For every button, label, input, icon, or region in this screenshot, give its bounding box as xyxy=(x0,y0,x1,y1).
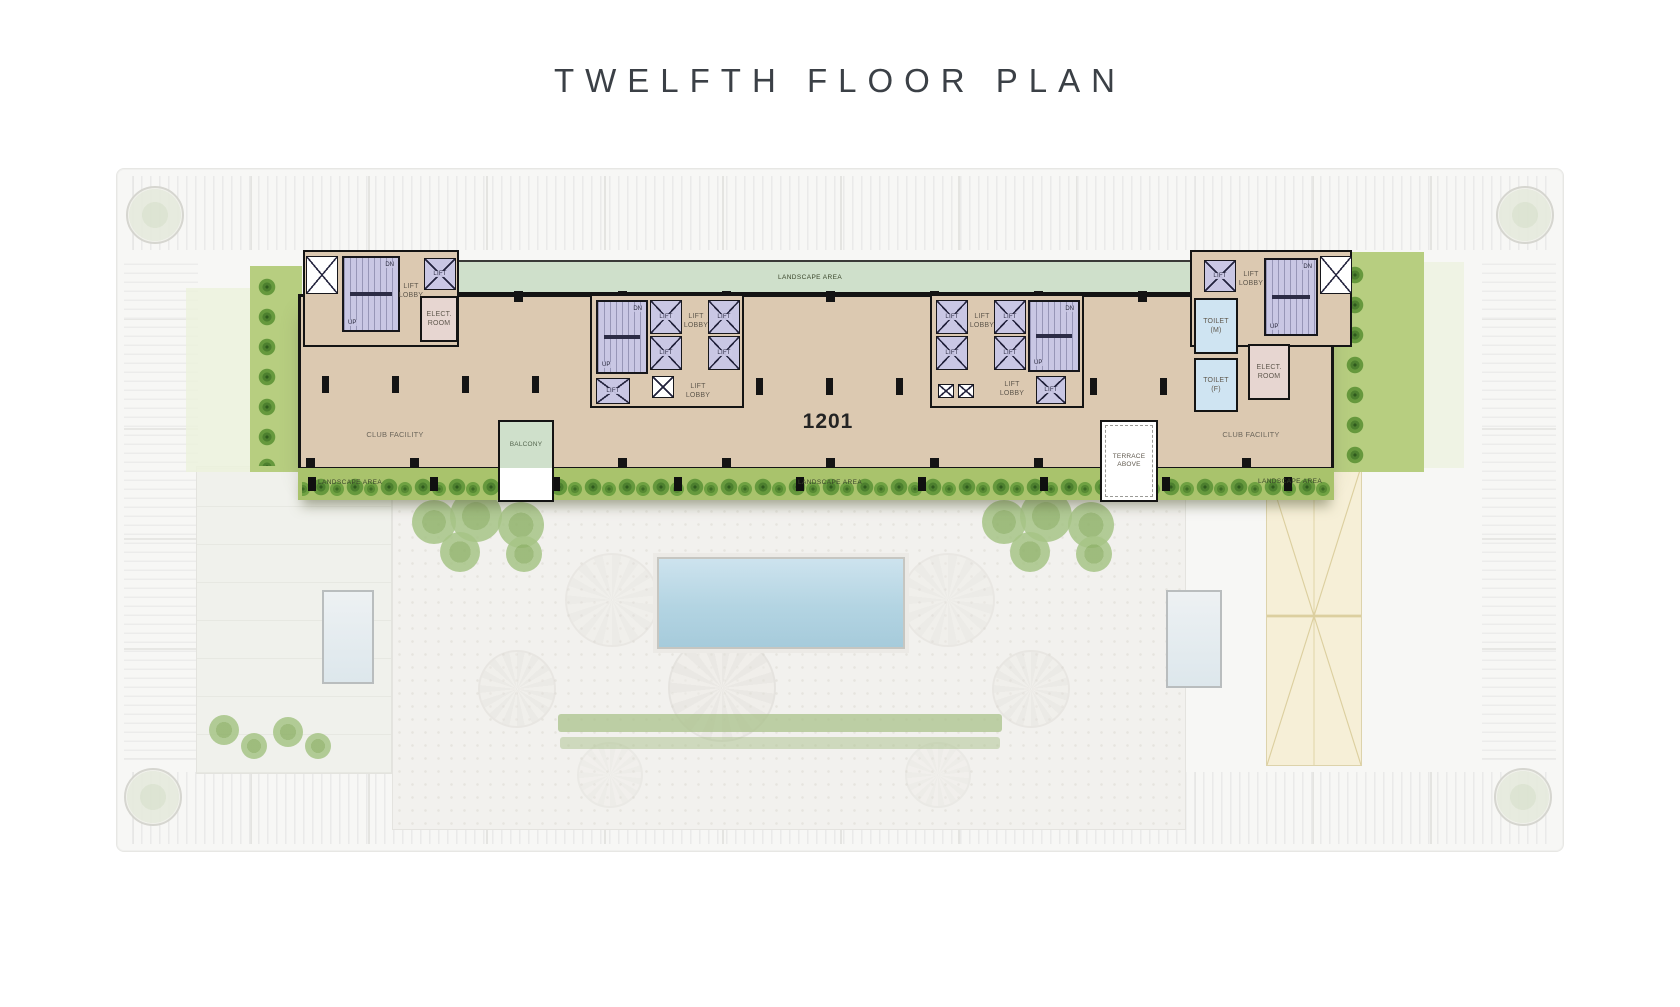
corner-tree-icon xyxy=(126,186,184,244)
column-row xyxy=(756,378,916,395)
stairs: UP DN xyxy=(1028,300,1080,372)
dn-label: DN xyxy=(1064,306,1075,312)
dn-label: DN xyxy=(632,306,643,312)
lift-label: LIFT xyxy=(658,314,673,320)
corner-tree-icon xyxy=(124,768,182,826)
landscape-area-label: LANDSCAPE AREA xyxy=(1240,478,1340,485)
club-facility-label: CLUB FACILITY xyxy=(1196,430,1306,440)
lift-label: LIFT xyxy=(944,350,959,356)
lift-shaft-icon: LIFT xyxy=(1036,376,1066,404)
up-label: UP xyxy=(601,362,611,368)
column-row xyxy=(1090,378,1170,395)
terrace-label: TERRACE ABOVE xyxy=(1107,453,1151,470)
lift-shaft-icon: LIFT xyxy=(994,336,1026,370)
lift-shaft-icon: LIFT xyxy=(994,300,1026,334)
service-shaft-icon xyxy=(938,384,954,398)
dn-label: DN xyxy=(1302,264,1313,270)
lift-shaft-icon: LIFT xyxy=(708,300,740,334)
corner-tree-icon xyxy=(1494,768,1552,826)
mosaic-medallion xyxy=(901,553,995,647)
mosaic-medallion xyxy=(992,650,1070,728)
service-shaft-icon xyxy=(958,384,974,398)
club-facility-label: CLUB FACILITY xyxy=(340,430,450,440)
corner-tree-icon xyxy=(1496,186,1554,244)
elect-room-label: ELECT. ROOM xyxy=(1252,363,1286,381)
toilet-f: TOILET (F) xyxy=(1194,358,1238,412)
lift-lobby-label: LIFT LOBBY xyxy=(680,382,716,400)
lift-lobby-label: LIFT LOBBY xyxy=(1236,270,1266,288)
site-hatch-top xyxy=(132,176,1548,250)
toilet-f-label: TOILET (F) xyxy=(1199,376,1233,394)
hedge-row xyxy=(558,714,1002,732)
water-feature-left xyxy=(322,590,374,684)
lift-shaft-icon: LIFT xyxy=(936,336,968,370)
up-label: UP xyxy=(347,320,357,326)
elect-room-label: ELECT. ROOM xyxy=(423,310,455,328)
landscape-strip-left xyxy=(250,266,302,472)
lift-label: LIFT xyxy=(716,314,731,320)
balcony-label: BALCONY xyxy=(510,441,542,449)
column-ticks-top xyxy=(306,291,1326,302)
lift-lobby-label: LIFT LOBBY xyxy=(994,380,1030,398)
lift-label: LIFT xyxy=(716,350,731,356)
mosaic-medallion xyxy=(905,742,971,808)
page-title: TWELFTH FLOOR PLAN xyxy=(0,62,1680,100)
lift-label: LIFT xyxy=(1002,350,1017,356)
elect-room: ELECT. ROOM xyxy=(420,296,458,342)
lift-label: LIFT xyxy=(1002,314,1017,320)
lift-shaft-icon: LIFT xyxy=(424,258,456,290)
up-label: UP xyxy=(1033,360,1043,366)
service-shaft-icon xyxy=(652,376,674,398)
terrace-dashed-border: TERRACE ABOVE xyxy=(1105,425,1153,497)
lift-lobby-label: LIFT LOBBY xyxy=(683,312,709,330)
terrace-above: TERRACE ABOVE xyxy=(1100,420,1158,502)
lift-shaft-icon: LIFT xyxy=(650,336,682,370)
tree-row-icon xyxy=(252,272,278,466)
stairs: UP DN xyxy=(596,300,648,374)
lift-shaft-icon xyxy=(306,256,338,294)
landscape-area-label: LANDSCAPE AREA xyxy=(300,479,400,486)
lift-shaft-icon: LIFT xyxy=(596,378,630,404)
mosaic-medallion xyxy=(577,742,643,808)
unit-number: 1201 xyxy=(788,410,868,434)
lift-shaft-icon: LIFT xyxy=(650,300,682,334)
lift-label: LIFT xyxy=(605,388,620,394)
lift-label: LIFT xyxy=(432,271,447,277)
garden-right xyxy=(982,490,1122,574)
landscape-area-label: LANDSCAPE AREA xyxy=(740,274,880,281)
lift-label: LIFT xyxy=(658,350,673,356)
sand-terrace-lines xyxy=(1267,467,1361,765)
swimming-pool xyxy=(657,557,905,649)
left-lawn xyxy=(186,288,250,472)
lift-lobby-label: LIFT LOBBY xyxy=(969,312,995,330)
mosaic-medallion xyxy=(478,650,556,728)
lift-shaft-icon: LIFT xyxy=(936,300,968,334)
toilet-m: TOILET (M) xyxy=(1194,298,1238,354)
lift-label: LIFT xyxy=(1043,387,1058,393)
garden-left xyxy=(412,490,552,574)
elect-room: ELECT. ROOM xyxy=(1248,344,1290,400)
toilet-m-label: TOILET (M) xyxy=(1199,317,1233,335)
lift-label: LIFT xyxy=(944,314,959,320)
stairs: UP DN xyxy=(342,256,400,332)
lift-shaft-icon: LIFT xyxy=(1204,260,1236,292)
lift-shaft-icon: LIFT xyxy=(708,336,740,370)
column-row xyxy=(322,376,572,393)
site-hatch-right xyxy=(1482,258,1556,760)
up-label: UP xyxy=(1269,324,1279,330)
lift-label: LIFT xyxy=(1212,273,1227,279)
dn-label: DN xyxy=(384,262,395,268)
floor-plan-canvas: TWELFTH FLOOR PLAN xyxy=(0,0,1680,1007)
balcony: BALCONY xyxy=(498,420,554,502)
water-feature-right xyxy=(1166,590,1222,688)
lift-shaft-icon xyxy=(1320,256,1352,294)
stairs: UP DN xyxy=(1264,258,1318,336)
hedge-row xyxy=(560,737,1000,749)
mosaic-medallion xyxy=(565,553,659,647)
balcony-label-band: BALCONY xyxy=(500,422,552,468)
right-lawn xyxy=(1424,262,1464,468)
sand-terrace xyxy=(1266,466,1362,766)
landscape-area-label: LANDSCAPE AREA xyxy=(780,479,880,486)
